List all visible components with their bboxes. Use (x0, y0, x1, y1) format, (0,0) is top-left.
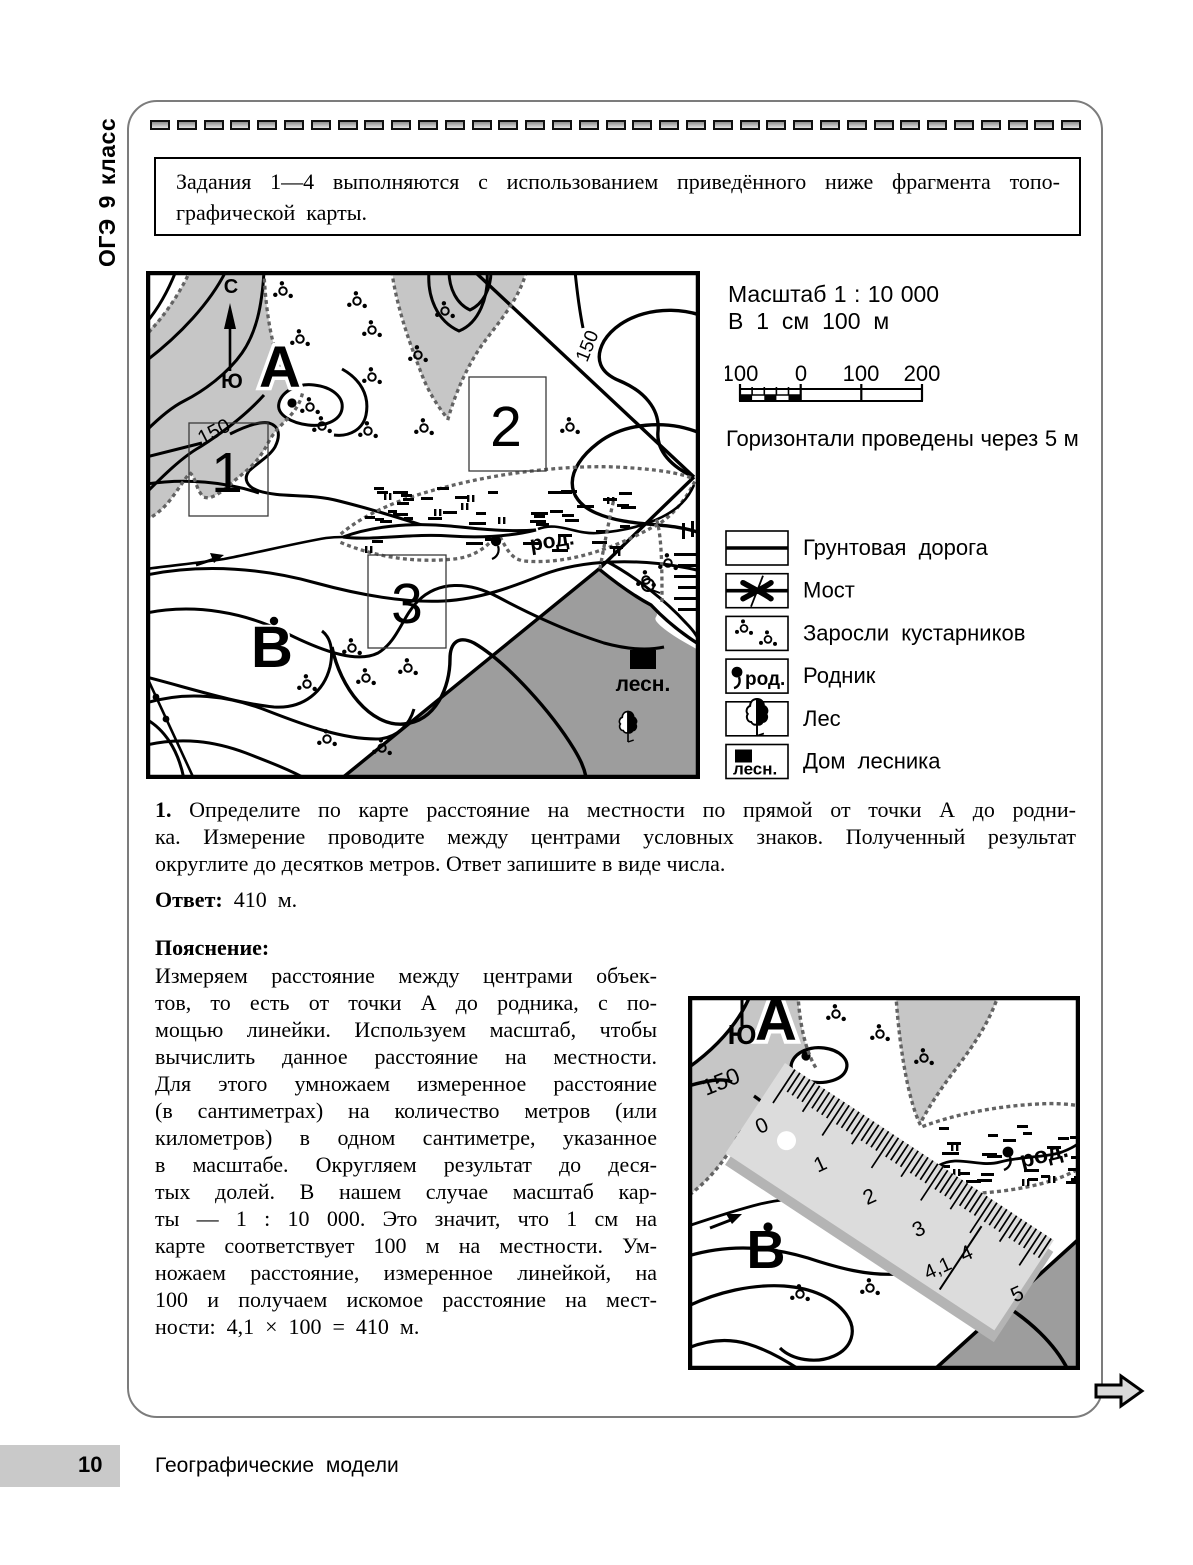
svg-text:200: 200 (904, 361, 941, 386)
svg-text:Мост: Мост (803, 578, 855, 603)
svg-text:100: 100 (843, 361, 880, 386)
svg-text:100: 100 (725, 361, 758, 386)
svg-text:А: А (259, 335, 301, 400)
svg-text:лесн.: лесн. (733, 760, 777, 779)
svg-text:Родник: Родник (803, 663, 876, 688)
svg-text:0: 0 (795, 361, 807, 386)
svg-text:Дом лесника: Дом лесника (803, 749, 941, 774)
svg-text:С: С (224, 276, 238, 298)
svg-text:Грунтовая дорога: Грунтовая дорога (803, 535, 989, 560)
svg-text:род.: род. (745, 669, 785, 690)
svg-text:В: В (251, 615, 293, 680)
svg-text:2: 2 (490, 395, 522, 459)
svg-text:3: 3 (391, 572, 423, 636)
svg-text:А: А (755, 996, 797, 1053)
svg-text:1: 1 (211, 441, 243, 505)
svg-text:Ю: Ю (221, 370, 243, 393)
svg-text:Лес: Лес (803, 706, 841, 731)
svg-text:лесн.: лесн. (616, 673, 671, 696)
svg-text:Ю: Ю (728, 1019, 757, 1050)
svg-text:Заросли кустарников: Заросли кустарников (803, 620, 1025, 645)
